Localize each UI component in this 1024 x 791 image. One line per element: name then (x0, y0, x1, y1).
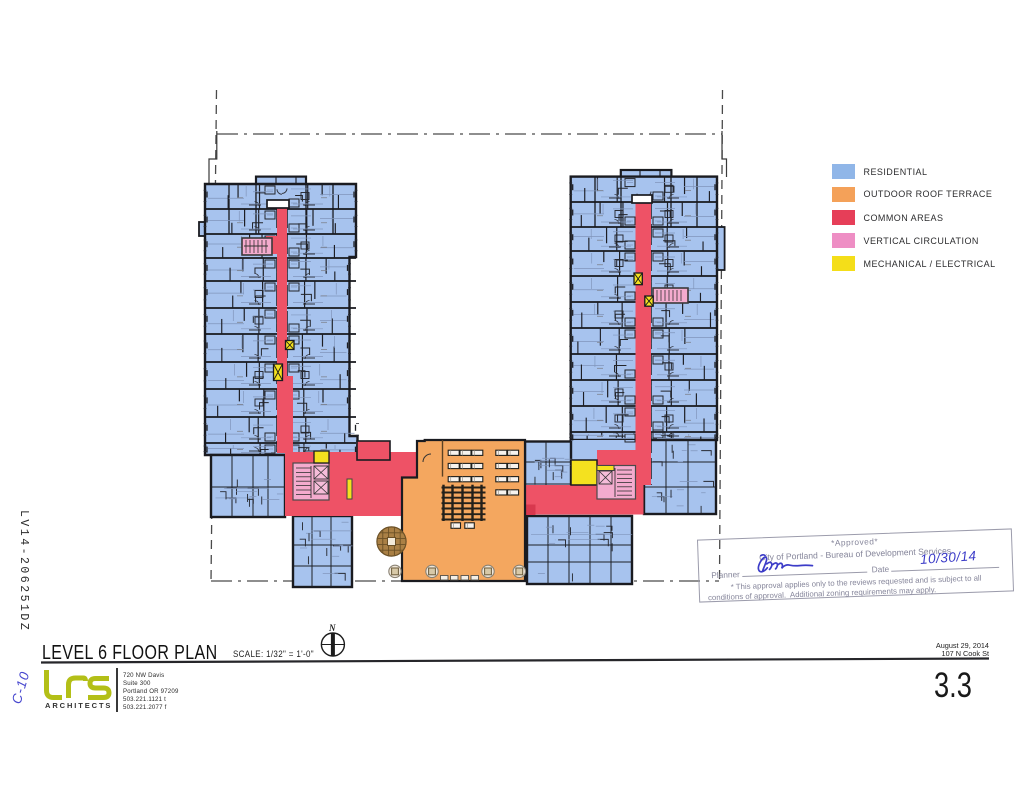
svg-text:N: N (328, 623, 336, 633)
